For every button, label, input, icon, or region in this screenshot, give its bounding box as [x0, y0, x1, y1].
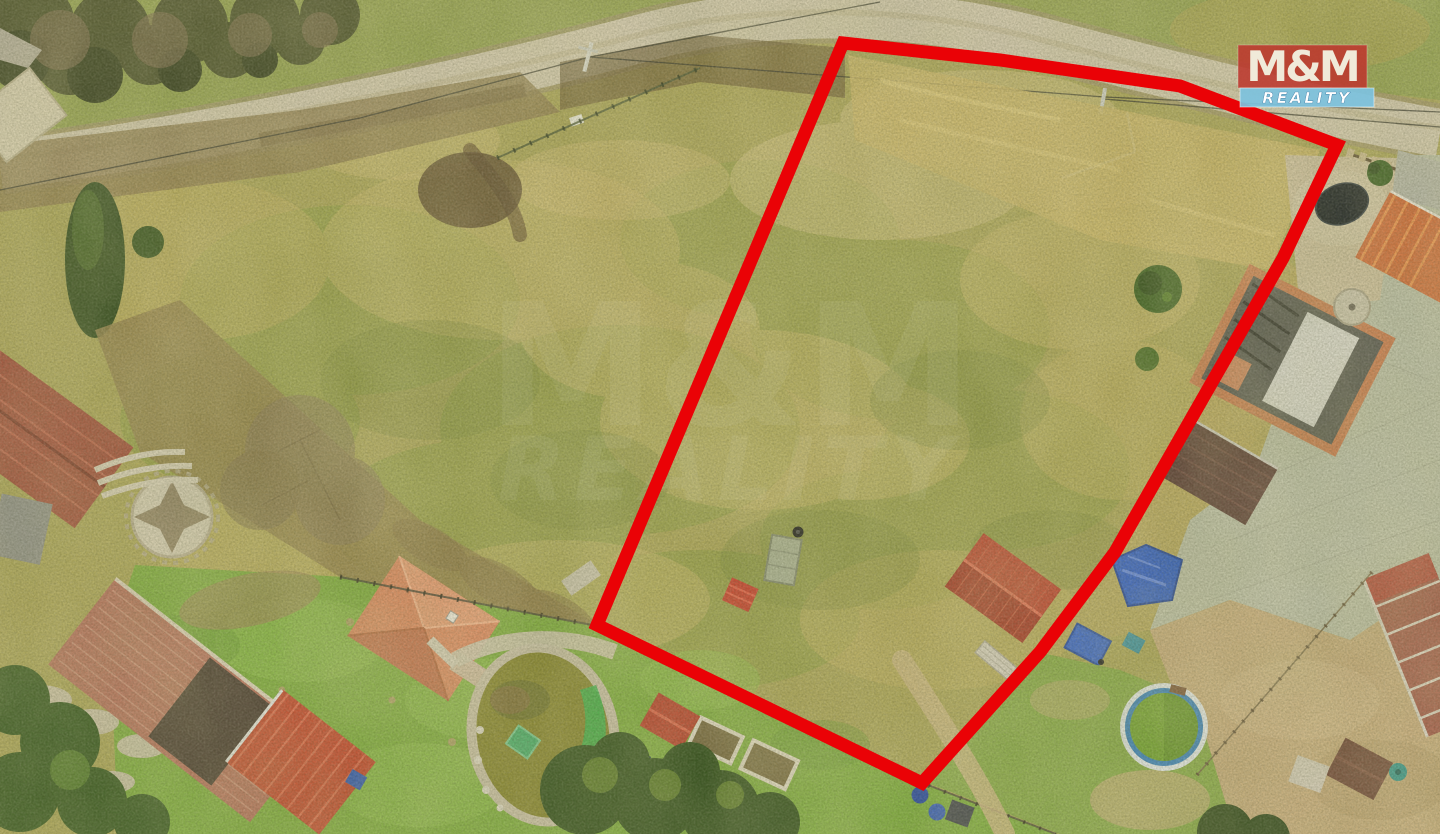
- logo-mm-text: M&M: [1246, 42, 1357, 91]
- logo-reality-text: REALITY: [1262, 89, 1351, 107]
- watermark-line2: REALITY: [498, 418, 963, 521]
- agency-logo: M&M REALITY: [1238, 42, 1374, 107]
- aerial-photo-page: M&M REALITY M&M REALITY: [0, 0, 1440, 834]
- aerial-photo: M&M REALITY M&M REALITY: [0, 0, 1440, 834]
